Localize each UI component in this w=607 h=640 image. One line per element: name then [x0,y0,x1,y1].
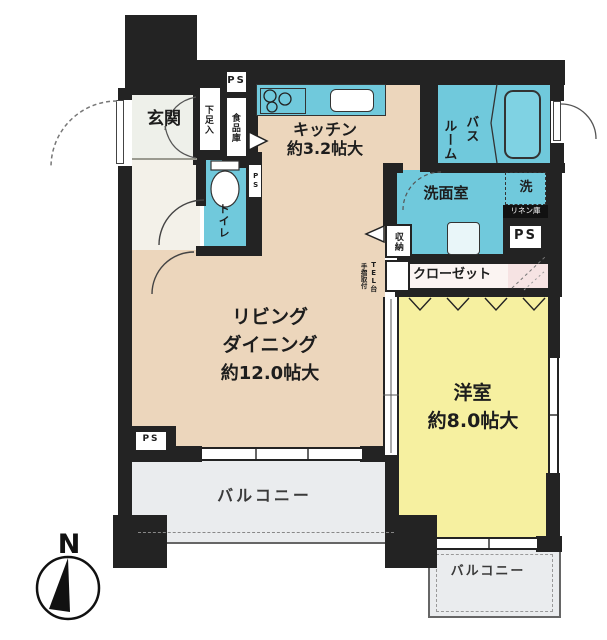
tel-stand-label: TEL台 [369,253,377,299]
balcony-main-label: バルコニー [202,487,327,505]
bathtub [504,90,541,159]
window-western-balcony [437,537,537,550]
bathroom-label-col2: ルーム [441,104,455,176]
ps-right-label: PS [508,229,543,243]
bath-side-door-arc [561,104,596,139]
wall-corner-bottom-right [536,536,562,552]
living-label-line1: リビング [190,307,350,328]
wall-pillar-bottom-left [113,515,167,568]
wall-toilet-left [196,158,206,206]
ps-toilet-label: PS [251,167,259,195]
kitchen-label: キッチン [255,121,395,139]
window-living-balcony [202,447,362,461]
partition-living-western [383,297,399,455]
wall-right-west-lower [546,473,560,539]
compass-circle [37,557,99,619]
closet-label: クローゼット [398,268,506,282]
wall-partition-lower [385,455,399,517]
ps-bottom-label: PS [134,435,168,445]
storage-label: 収納 [392,227,402,257]
kitchen-sink [330,89,374,112]
western-room-size-label: 約8.0帖大 [402,411,544,432]
tel-stand-note: 手摺取付 [359,256,366,296]
pantry-label: 食品庫 [229,101,239,155]
wall-washroom-top-left [383,163,403,173]
kitchen-living-connector [260,168,385,254]
wall-left-upper [118,88,132,100]
washbasin [447,222,480,255]
entrance-door-leaf [116,100,124,164]
laundry-label: 洗 [513,181,539,195]
genkan-label: 玄関 [132,110,196,129]
washroom-label: 洗面室 [402,185,490,202]
living-size-label: 約12.0帖大 [185,364,355,384]
ps-top-label: PS [225,75,248,86]
balcony-sub-inner-line [436,554,553,612]
western-room-label: 洋室 [420,383,525,404]
genkan-threshold [132,158,197,160]
balcony-sub-label: バルコニー [434,565,542,579]
compass-needle-icon [49,558,70,612]
compass-north-label: N [52,530,86,560]
wall-closet-bottom [395,288,553,297]
linen-label: リネン庫 [503,207,548,215]
entrance-door-arc [51,101,117,167]
window-western-right [548,358,559,473]
living-label-line2: ダイニング [185,335,355,356]
wall-left-main [118,166,132,518]
balcony-main-inner-line [138,532,394,533]
wall-right-closet [548,250,562,297]
kitchen-size-label: 約3.2帖大 [255,140,395,158]
wall-pillar-top-left [125,15,197,90]
shoe-cabinet-label: 下足入 [202,91,212,149]
wall-washroom-bottom [397,254,550,264]
kitchen-stove [260,88,306,114]
bath-side-door-leaf [553,101,561,141]
wall-pillar-bottom-mid [385,515,437,568]
wall-right-west-upper [548,297,560,358]
wall-right-mid [546,170,562,255]
floor-plan: 玄関 下足入 PS 食品庫 トイレ PS キッチン 約3.2帖大 バス ルーム … [0,0,607,640]
hall-floor [128,158,200,252]
wall-kitchen-bath [420,60,438,172]
bathroom-label-col1: バス [463,99,477,159]
toilet-label: トイレ [217,194,229,248]
